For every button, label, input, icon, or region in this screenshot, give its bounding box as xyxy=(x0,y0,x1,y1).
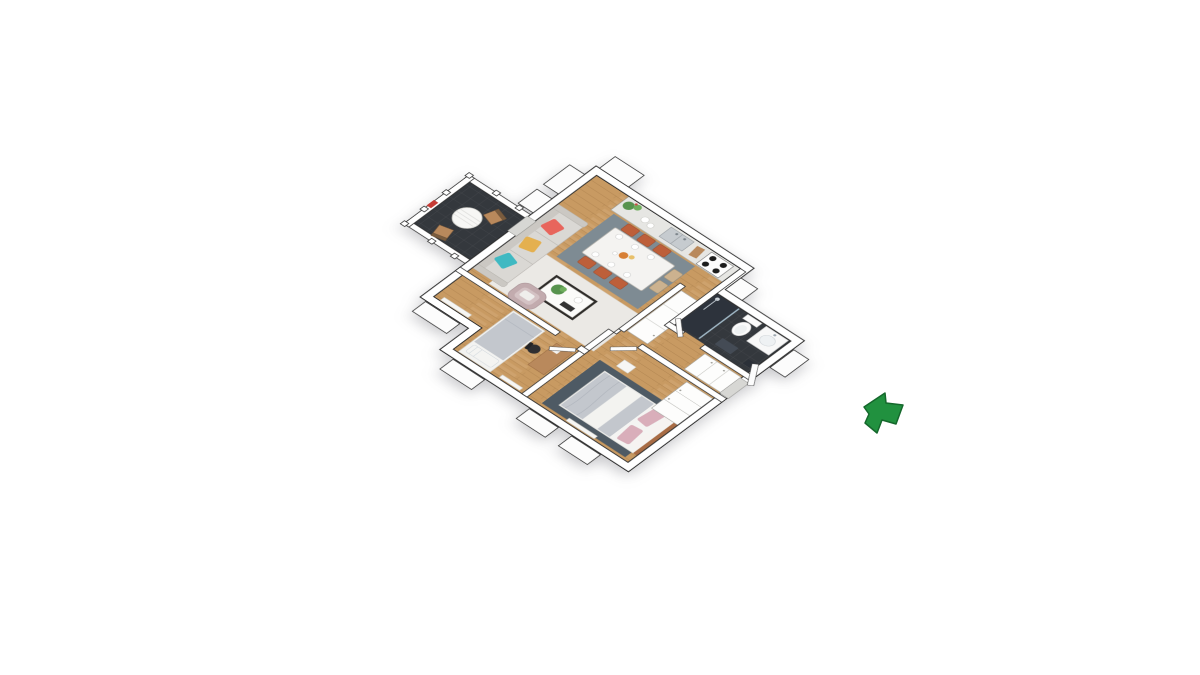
apartment-3d-scene xyxy=(263,97,937,559)
entrance-arrow-icon xyxy=(858,390,910,440)
floor-plan-image xyxy=(0,0,1200,675)
floor-plan-svg xyxy=(263,97,937,559)
master-bedroom-door-leaf xyxy=(610,347,636,351)
